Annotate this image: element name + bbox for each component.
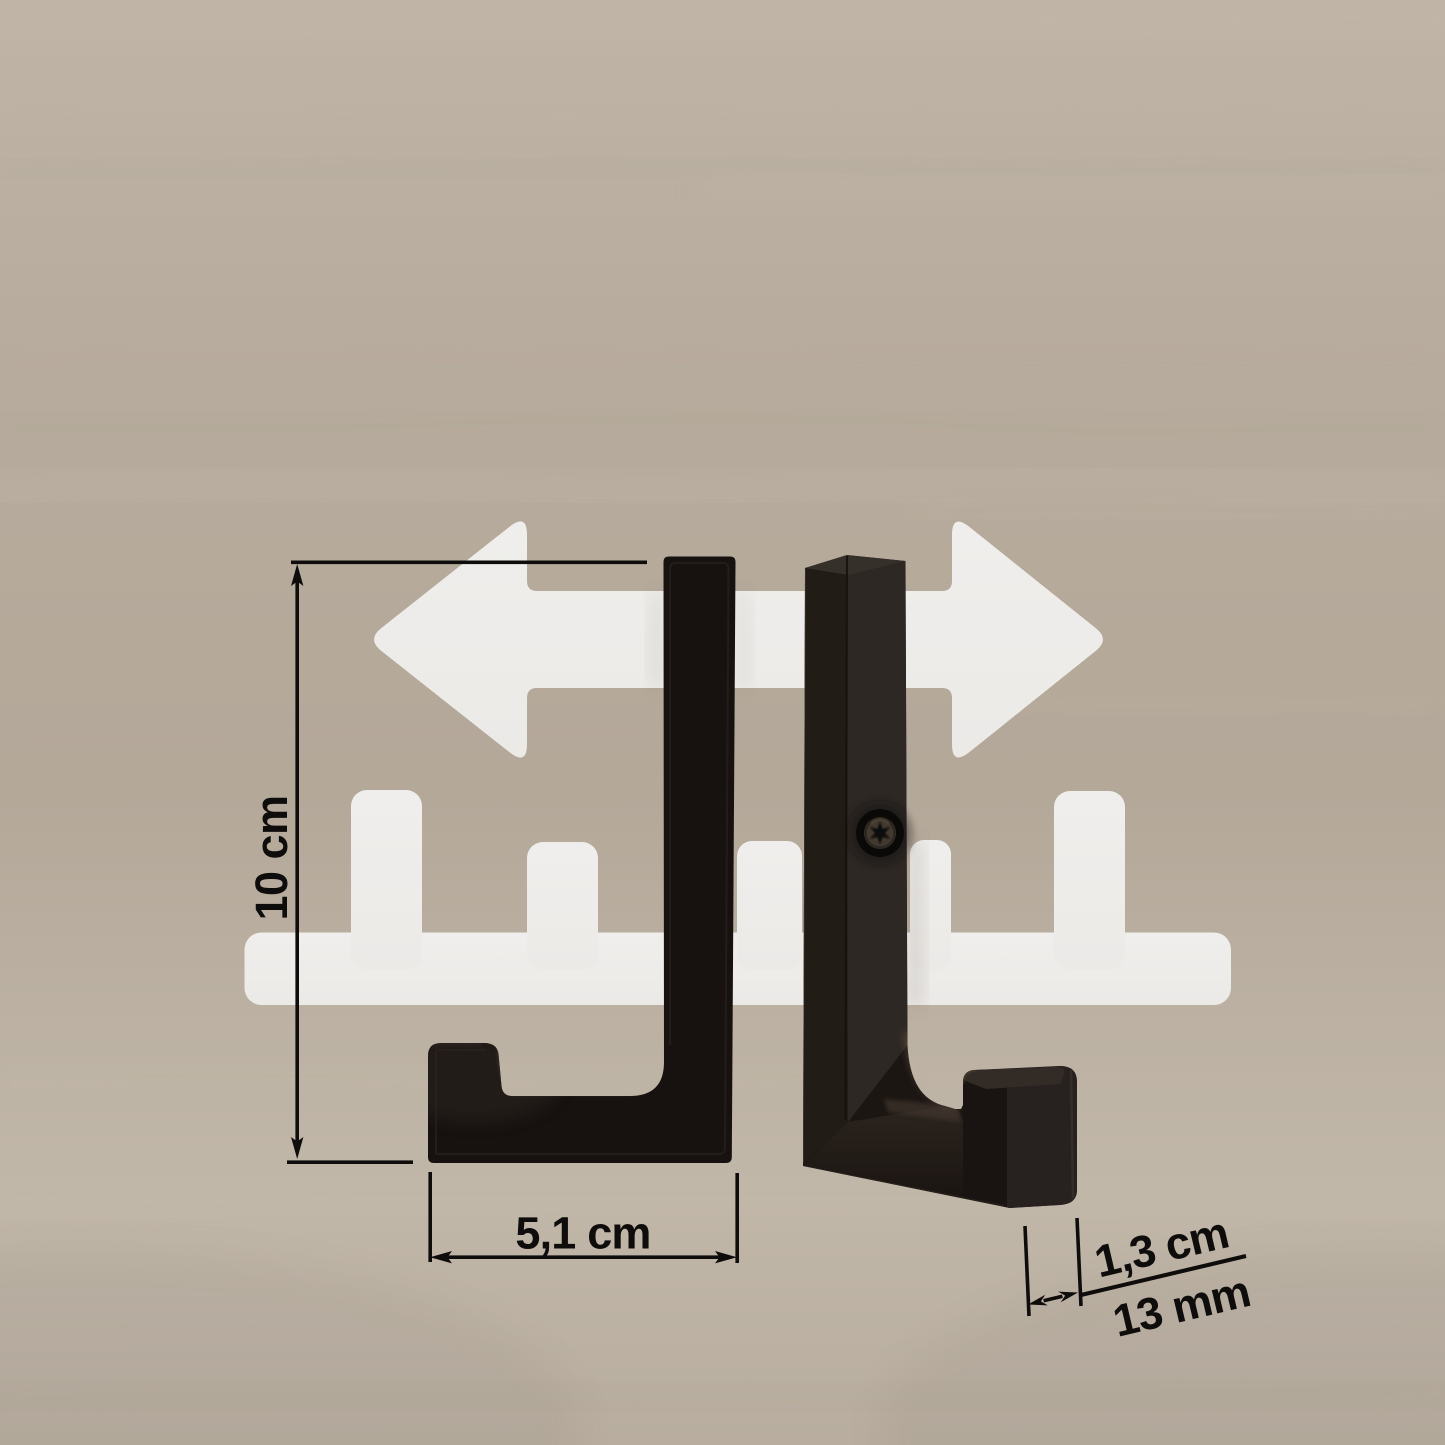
svg-text:5,1 cm: 5,1 cm bbox=[515, 1208, 650, 1259]
svg-text:10 cm: 10 cm bbox=[246, 795, 297, 920]
